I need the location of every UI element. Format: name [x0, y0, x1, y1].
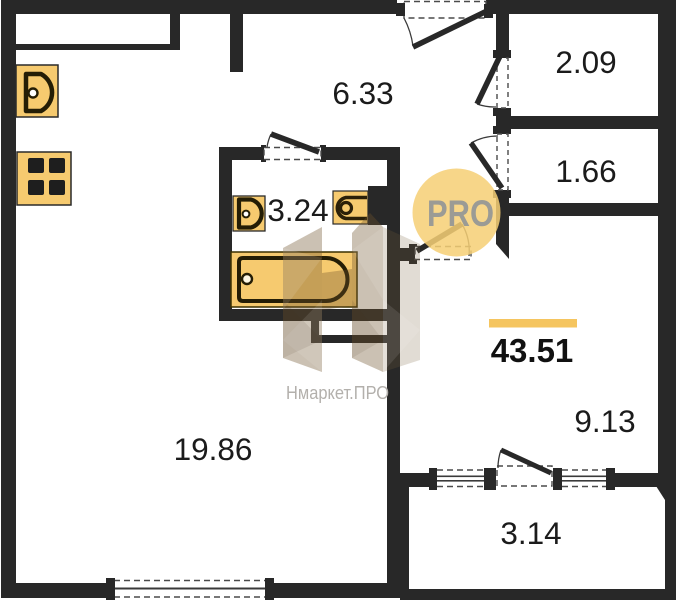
svg-text:19.86: 19.86 — [174, 431, 253, 467]
svg-text:Нмаркет.ПРО: Нмаркет.ПРО — [286, 382, 389, 403]
svg-text:PRO: PRO — [427, 193, 494, 234]
svg-text:3.14: 3.14 — [500, 515, 561, 551]
svg-text:9.13: 9.13 — [574, 403, 635, 439]
svg-text:3.24: 3.24 — [267, 192, 328, 228]
svg-text:2.09: 2.09 — [555, 44, 616, 80]
svg-text:43.51: 43.51 — [491, 332, 574, 369]
svg-text:1.66: 1.66 — [555, 153, 616, 189]
svg-text:6.33: 6.33 — [332, 75, 393, 111]
